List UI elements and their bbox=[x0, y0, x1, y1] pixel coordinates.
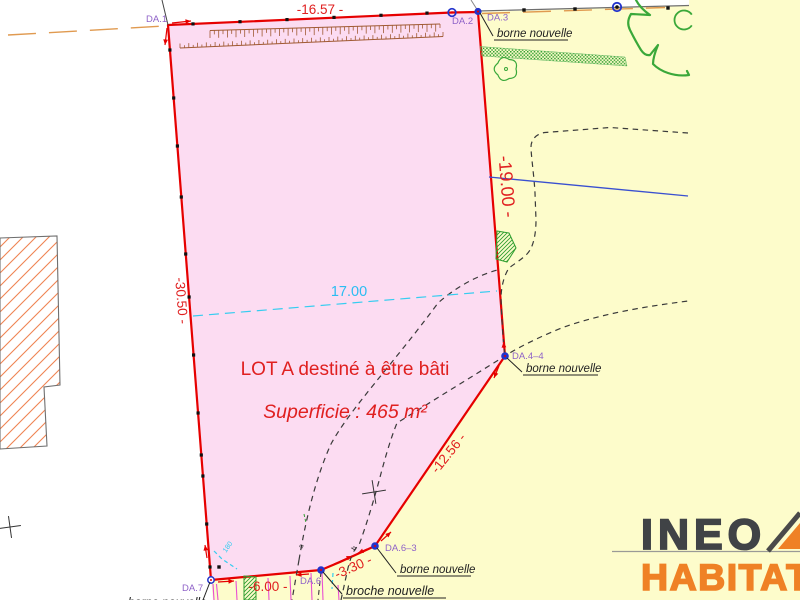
svg-text:HABITAT: HABITAT bbox=[641, 556, 800, 598]
svg-text:17.00: 17.00 bbox=[331, 284, 367, 300]
svg-text:borne nouvelle: borne nouvelle bbox=[400, 564, 475, 576]
svg-text:DA.1: DA.1 bbox=[146, 14, 167, 25]
svg-text:DA.3: DA.3 bbox=[487, 13, 508, 24]
svg-text:Superficie : 465 m²: Superficie : 465 m² bbox=[263, 401, 428, 423]
svg-text:DA.4–4: DA.4–4 bbox=[512, 351, 544, 362]
svg-text:DA.6–3: DA.6–3 bbox=[385, 543, 417, 554]
svg-text:INEO: INEO bbox=[641, 511, 766, 559]
svg-text:broche nouvelle: broche nouvelle bbox=[346, 584, 434, 598]
svg-text:-6.00 -: -6.00 - bbox=[248, 579, 287, 594]
svg-text:borne nouvelle: borne nouvelle bbox=[497, 28, 572, 40]
svg-text:LOT A destiné à être bâti: LOT A destiné à être bâti bbox=[241, 359, 450, 380]
svg-text:DA.6: DA.6 bbox=[300, 576, 321, 587]
svg-text:-16.57 -: -16.57 - bbox=[297, 2, 344, 17]
svg-text:borne nouvelle: borne nouvelle bbox=[128, 595, 207, 600]
svg-text:DA.2: DA.2 bbox=[452, 16, 473, 27]
svg-text:borne nouvelle: borne nouvelle bbox=[526, 363, 601, 375]
svg-text:DA.7: DA.7 bbox=[182, 583, 203, 594]
